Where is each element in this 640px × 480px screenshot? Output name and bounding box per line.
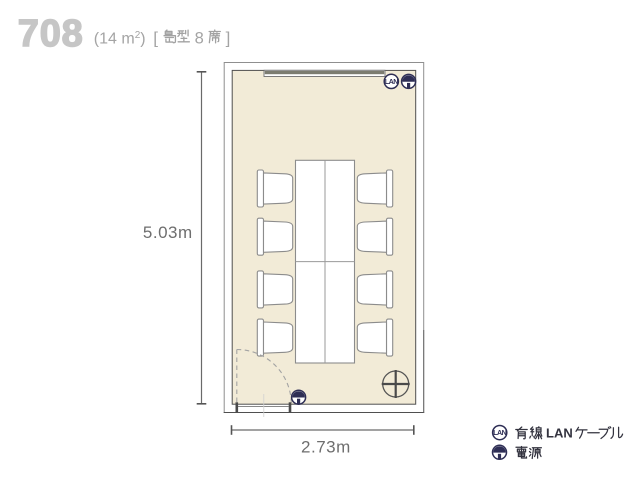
svg-text:LAN: LAN (546, 426, 573, 441)
svg-text:2.73m: 2.73m (301, 438, 351, 457)
svg-text:[: [ (153, 28, 158, 47)
svg-text:]: ] (226, 28, 231, 47)
svg-text:5.03m: 5.03m (143, 223, 193, 242)
svg-text:708: 708 (18, 13, 84, 55)
svg-text:8: 8 (195, 29, 204, 47)
